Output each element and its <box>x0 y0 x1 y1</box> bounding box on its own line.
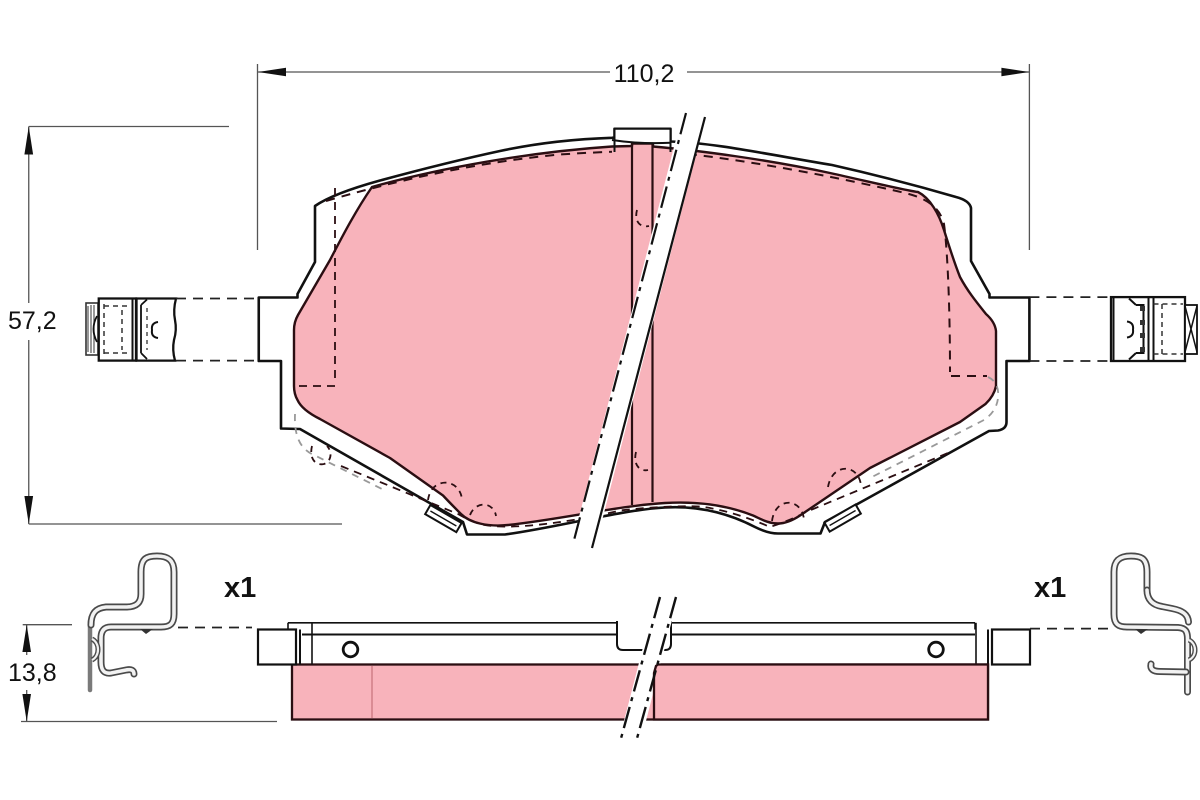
svg-text:13,8: 13,8 <box>8 659 57 687</box>
svg-text:x1: x1 <box>224 572 256 604</box>
svg-text:57,2: 57,2 <box>8 307 57 335</box>
svg-text:110,2: 110,2 <box>614 60 675 88</box>
svg-text:x1: x1 <box>1034 572 1066 604</box>
